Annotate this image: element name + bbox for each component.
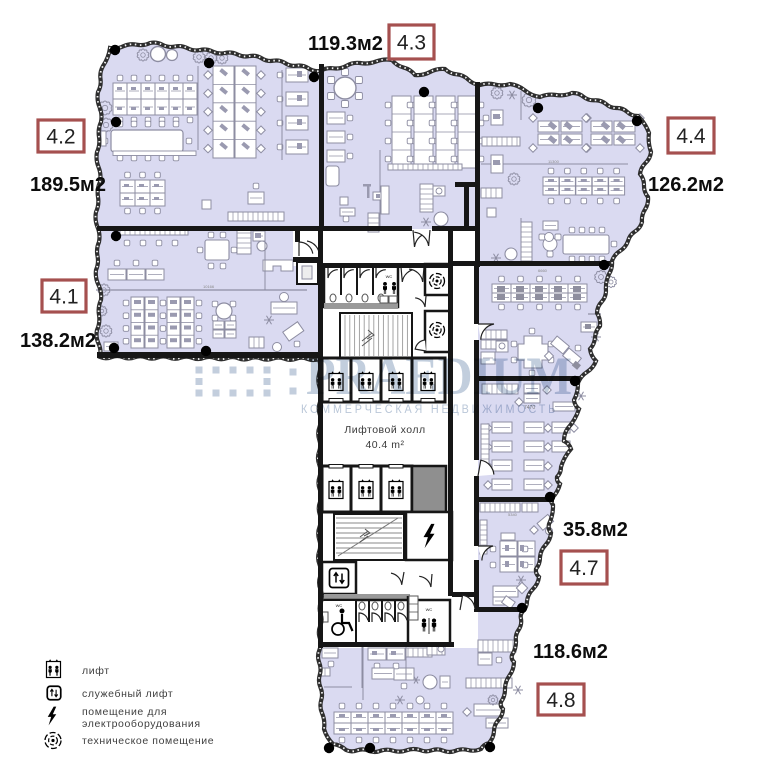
svg-text:техническое помещение: техническое помещение: [82, 735, 214, 747]
svg-text:118.6м2: 118.6м2: [533, 641, 608, 663]
svg-text:4.4: 4.4: [676, 125, 706, 148]
svg-text:40.4 m²: 40.4 m²: [365, 439, 404, 451]
svg-text:11300: 11300: [548, 159, 560, 164]
svg-text:4.1: 4.1: [49, 285, 78, 308]
svg-text:WC: WC: [386, 274, 393, 279]
svg-text:138.2м2: 138.2м2: [20, 330, 96, 352]
svg-text:6660: 6660: [538, 268, 548, 273]
svg-text:Лифтовой холл: Лифтовой холл: [344, 424, 425, 436]
svg-text:126.2м2: 126.2м2: [648, 174, 724, 196]
svg-text:4.2: 4.2: [46, 125, 75, 148]
svg-text:5340: 5340: [508, 512, 518, 517]
svg-text:PRAEDIUM: PRAEDIUM: [306, 346, 572, 406]
svg-text:4.7: 4.7: [569, 557, 598, 580]
svg-text:189.5м2: 189.5м2: [30, 174, 106, 196]
svg-text:служебный лифт: служебный лифт: [82, 688, 173, 700]
svg-text:119.3м2: 119.3м2: [308, 33, 383, 55]
svg-text:4.8: 4.8: [546, 689, 575, 712]
svg-text:помещение для: помещение для: [82, 706, 167, 718]
svg-text:WC: WC: [426, 607, 433, 612]
svg-text:электрооборудования: электрооборудования: [82, 718, 201, 730]
svg-text:лифт: лифт: [82, 665, 110, 677]
svg-text:КОММЕРЧЕСКАЯ НЕДВИЖИМОСТЬ: КОММЕРЧЕСКАЯ НЕДВИЖИМОСТЬ: [301, 404, 558, 416]
svg-text:10166: 10166: [203, 284, 215, 289]
svg-text:35.8м2: 35.8м2: [563, 519, 628, 541]
svg-text:WC: WC: [336, 603, 343, 608]
svg-text:4.3: 4.3: [397, 31, 426, 54]
